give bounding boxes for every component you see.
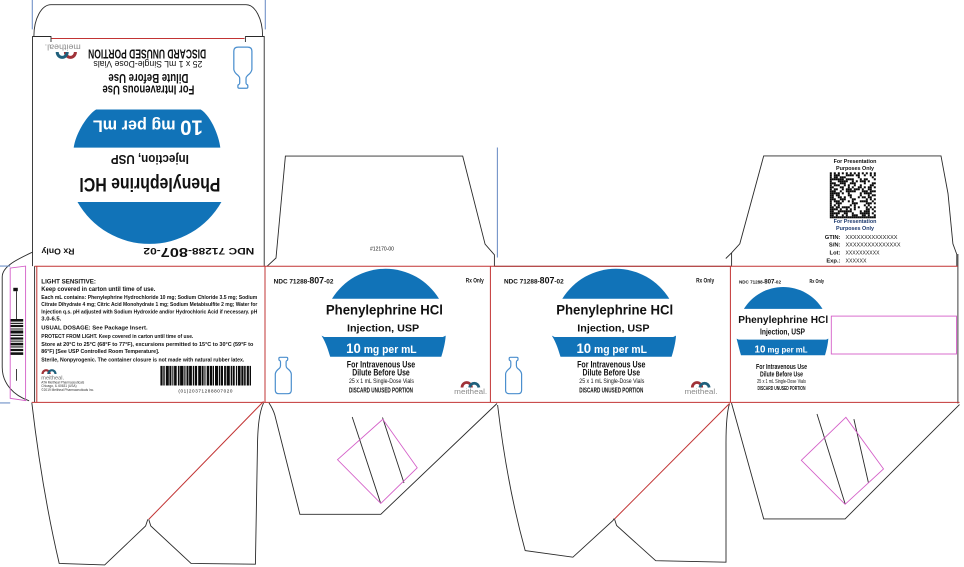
- svg-text:NDC 71288-807-02: NDC 71288-807-02: [143, 245, 254, 259]
- svg-text:Rx Only: Rx Only: [696, 278, 714, 285]
- svg-text:NDC 71288-807-02: NDC 71288-807-02: [739, 278, 781, 285]
- svg-text:Injection, USP: Injection, USP: [110, 152, 188, 167]
- svg-text:XXXXXX: XXXXXX: [846, 258, 867, 264]
- svg-text:©2019 Meitheal Pharmaceuticals: ©2019 Meitheal Pharmaceuticals Inc.: [41, 388, 94, 392]
- svg-text:Injection, USP: Injection, USP: [347, 323, 419, 334]
- svg-text:Phenylephrine HCl: Phenylephrine HCl: [79, 173, 220, 194]
- svg-text:Rx Only: Rx Only: [41, 247, 75, 256]
- svg-text:S/N:: S/N:: [829, 243, 841, 249]
- svg-text:Injection q.s. pH adjusted wit: Injection q.s. pH adjusted with Sodium H…: [41, 309, 257, 315]
- svg-text:3.0-6.5.: 3.0-6.5.: [41, 317, 61, 323]
- svg-text:Injection, USP: Injection, USP: [760, 328, 806, 337]
- svg-text:Dilute Before Use: Dilute Before Use: [583, 367, 641, 377]
- svg-text:(01)20371288807020: (01)20371288807020: [178, 388, 233, 393]
- svg-text:meitheal.: meitheal.: [685, 387, 718, 396]
- svg-text:XXXXXXXXXXXXXX: XXXXXXXXXXXXXX: [846, 235, 898, 241]
- svg-text:Injection, USP: Injection, USP: [577, 323, 649, 334]
- svg-text:Store at 20°C to 25°C (68°F t: Store at 20°C to 25°C (68°F to 77°F), ex…: [41, 342, 253, 348]
- svg-text:25 x 1 mL Single-Dose Vials: 25 x 1 mL Single-Dose Vials: [349, 378, 415, 385]
- svg-text:For Presentation: For Presentation: [834, 159, 877, 165]
- svg-text:Rx Only: Rx Only: [466, 278, 484, 285]
- svg-text:10 mg per mL: 10 mg per mL: [93, 115, 203, 139]
- svg-text:Each mL contains: Phenylephrin: Each mL contains: Phenylephrine Hydrochl…: [41, 295, 257, 301]
- svg-text:For Presentation: For Presentation: [834, 219, 877, 225]
- svg-text:DISCARD UNUSED PORTION: DISCARD UNUSED PORTION: [349, 386, 413, 395]
- svg-text:DISCARD UNUSED PORTION: DISCARD UNUSED PORTION: [88, 47, 206, 61]
- svg-text:Exp.:: Exp.:: [826, 258, 840, 264]
- svg-text:Phenylephrine HCl: Phenylephrine HCl: [556, 303, 673, 318]
- svg-text:25 x 1 mL Single-Dose Vials: 25 x 1 mL Single-Dose Vials: [757, 379, 806, 385]
- svg-text:Rx Only: Rx Only: [810, 279, 825, 285]
- svg-text:86°F) [See USP Controlled Roo: 86°F) [See USP Controlled Room Temperatu…: [41, 349, 159, 355]
- svg-text:meitheal.: meitheal.: [454, 387, 487, 396]
- svg-text:GTIN:: GTIN:: [825, 235, 841, 241]
- svg-text:Dilute Before Use: Dilute Before Use: [352, 367, 410, 377]
- svg-text:Purposes Only: Purposes Only: [836, 226, 874, 232]
- svg-text:Lot:: Lot:: [830, 250, 841, 256]
- svg-text:Citrate Dihydrate 4 mg; Citric: Citrate Dihydrate 4 mg; Citric Acid Mono…: [41, 302, 258, 308]
- svg-text:Purposes Only: Purposes Only: [836, 166, 874, 172]
- svg-text:LIGHT SENSITIVE:: LIGHT SENSITIVE:: [41, 279, 96, 286]
- svg-text:XXXXXXXXXXXXXXX: XXXXXXXXXXXXXXX: [846, 243, 901, 249]
- svg-text:#12170-00: #12170-00: [370, 246, 394, 252]
- svg-text:USUAL DOSAGE: See Package Ins: USUAL DOSAGE: See Package Insert.: [41, 325, 148, 331]
- svg-text:meitheal.: meitheal.: [45, 42, 81, 51]
- svg-text:PROTECT FROM LIGHT. Keep cover: PROTECT FROM LIGHT. Keep covered in cart…: [41, 334, 193, 340]
- svg-text:Sterile, Nonpyrogenic. The con: Sterile, Nonpyrogenic. The container clo…: [41, 358, 244, 364]
- svg-text:XXXXXXXXXX: XXXXXXXXXX: [846, 250, 880, 256]
- svg-text:25 x 1 mL Single-Dose Vials: 25 x 1 mL Single-Dose Vials: [579, 378, 645, 385]
- svg-text:Dilute Before Use: Dilute Before Use: [108, 71, 188, 86]
- svg-text:Keep covered in carton until t: Keep covered in carton until time of use…: [41, 286, 155, 293]
- svg-text:10 mg per mL: 10 mg per mL: [755, 344, 808, 356]
- svg-text:For Intravenous Use: For Intravenous Use: [756, 364, 807, 371]
- svg-text:Dilute Before Use: Dilute Before Use: [760, 371, 803, 378]
- svg-text:Phenylephrine HCl: Phenylephrine HCl: [326, 303, 443, 318]
- svg-text:DISCARD UNUSED PORTION: DISCARD UNUSED PORTION: [758, 386, 806, 392]
- svg-text:Phenylephrine HCl: Phenylephrine HCl: [738, 314, 828, 326]
- svg-text:DISCARD UNUSED PORTION: DISCARD UNUSED PORTION: [579, 386, 643, 395]
